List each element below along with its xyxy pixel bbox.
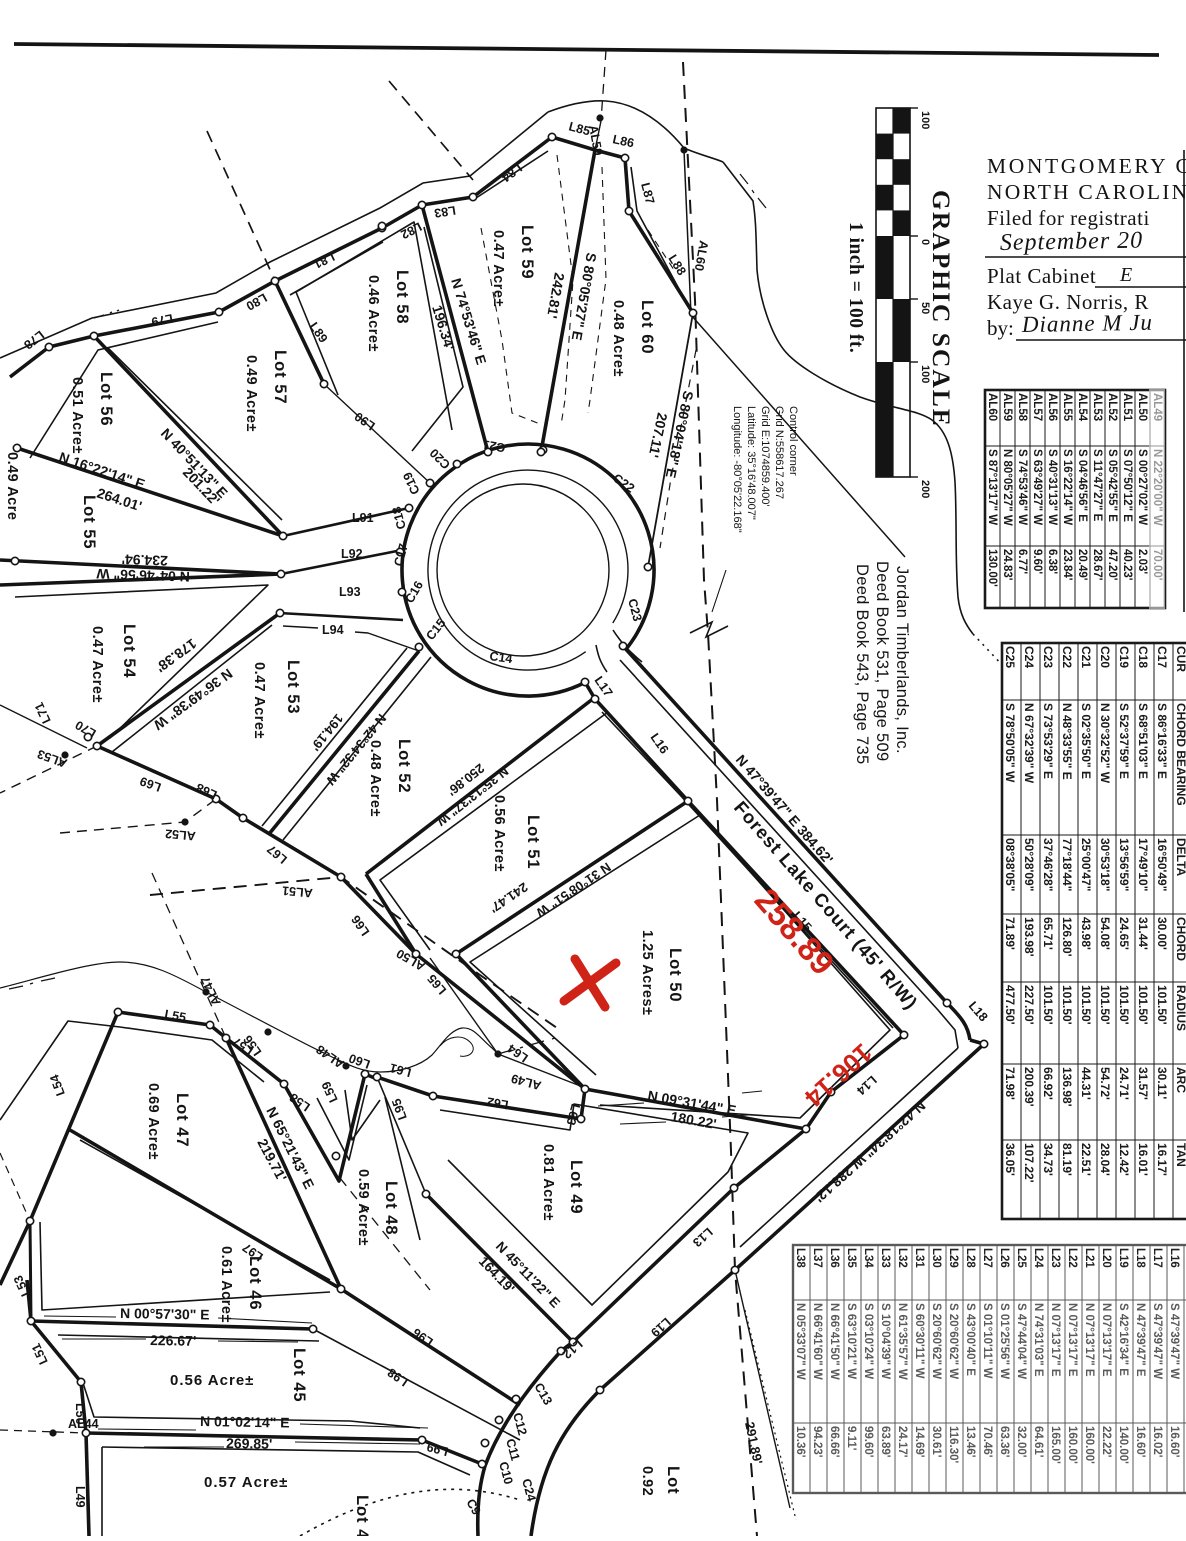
svg-text:N 01°02'14" E: N 01°02'14" E <box>200 1413 290 1431</box>
svg-text:16.60': 16.60' <box>1134 1426 1146 1458</box>
svg-text:12.42': 12.42' <box>1117 1143 1131 1176</box>
svg-text:S 20°60'62" W: S 20°60'62" W <box>930 1303 942 1379</box>
svg-text:GRAPHIC SCALE: GRAPHIC SCALE <box>927 190 956 428</box>
svg-text:ARC: ARC <box>1174 1067 1186 1093</box>
svg-text:N 47°39'47" E: N 47°39'47" E <box>1134 1303 1146 1377</box>
svg-text:99.60': 99.60' <box>862 1426 874 1458</box>
svg-text:200: 200 <box>919 480 931 498</box>
svg-text:24.17': 24.17' <box>896 1426 908 1458</box>
svg-text:6.38': 6.38' <box>1046 549 1058 574</box>
svg-text:Lot 50: Lot 50 <box>666 948 684 1003</box>
svg-text:Lot 53: Lot 53 <box>284 660 302 715</box>
svg-text:0.47 Acre±: 0.47 Acre± <box>89 626 105 703</box>
svg-text:269.85': 269.85' <box>226 1435 272 1452</box>
svg-text:16.02': 16.02' <box>1151 1426 1163 1458</box>
svg-text:N 07°13'17" E: N 07°13'17" E <box>1049 1303 1061 1377</box>
svg-text:0.92: 0.92 <box>639 1466 655 1496</box>
svg-text:226.67': 226.67' <box>150 1332 196 1349</box>
svg-text:AL57: AL57 <box>1031 393 1043 421</box>
svg-text:101.50': 101.50' <box>1117 985 1131 1025</box>
svg-text:C20: C20 <box>1098 646 1112 668</box>
svg-text:Longitude: -80°05'22.168": Longitude: -80°05'22.168" <box>731 406 743 533</box>
svg-text:Lot 56: Lot 56 <box>97 372 115 427</box>
svg-text:Lot 54: Lot 54 <box>120 624 138 679</box>
svg-text:AL52: AL52 <box>1106 393 1118 421</box>
svg-text:L18: L18 <box>1134 1248 1146 1268</box>
svg-text:66.66': 66.66' <box>828 1426 840 1458</box>
svg-text:S 01°10'11" W: S 01°10'11" W <box>981 1303 993 1379</box>
svg-text:N 00°57'30" E: N 00°57'30" E <box>120 1305 210 1323</box>
svg-text:Deed Book 543, Page 735: Deed Book 543, Page 735 <box>853 564 871 764</box>
svg-text:94.23': 94.23' <box>811 1426 823 1458</box>
svg-text:N 07°13'17" E: N 07°13'17" E <box>1066 1303 1078 1377</box>
svg-text:10.36': 10.36' <box>794 1426 806 1458</box>
svg-text:AL58: AL58 <box>1016 393 1028 422</box>
svg-text:Jordan Timberlands, Inc.: Jordan Timberlands, Inc. <box>893 566 911 754</box>
svg-text:9.60': 9.60' <box>1031 549 1043 574</box>
svg-text:13.46': 13.46' <box>964 1426 976 1458</box>
svg-text:L20: L20 <box>1100 1248 1112 1268</box>
svg-text:L35: L35 <box>845 1248 857 1268</box>
svg-text:0.48 Acre±: 0.48 Acre± <box>367 740 383 817</box>
svg-text:N 67°32'39" W: N 67°32'39" W <box>1022 703 1036 784</box>
svg-text:165.00': 165.00' <box>1049 1426 1061 1464</box>
svg-text:S 01°25'56" W: S 01°25'56" W <box>998 1303 1010 1379</box>
svg-text:Filed for registrati: Filed for registrati <box>987 206 1150 230</box>
svg-text:101.50': 101.50' <box>1060 985 1074 1025</box>
svg-text:S 68°51'03" E: S 68°51'03" E <box>1136 703 1150 779</box>
svg-text:L24: L24 <box>1032 1248 1044 1268</box>
svg-text:22.22': 22.22' <box>1100 1426 1112 1458</box>
svg-text:N 30°32'52" W: N 30°32'52" W <box>1098 703 1112 784</box>
svg-text:227.50': 227.50' <box>1022 985 1036 1025</box>
svg-text:101.50': 101.50' <box>1079 985 1093 1025</box>
svg-text:Lot 55: Lot 55 <box>80 495 98 550</box>
svg-text:30.11': 30.11' <box>1155 1067 1169 1099</box>
svg-text:0.49 Acre±: 0.49 Acre± <box>243 355 259 432</box>
svg-text:Latitude: 35°16'48.007": Latitude: 35°16'48.007" <box>745 406 757 520</box>
svg-text:S 63°49'27" W: S 63°49'27" W <box>1031 449 1043 525</box>
svg-text:0.56 Acre±: 0.56 Acre± <box>170 1372 254 1389</box>
svg-text:Lot 49: Lot 49 <box>567 1160 585 1215</box>
svg-text:L94: L94 <box>322 623 344 637</box>
svg-text:Lot 44: Lot 44 <box>353 1495 371 1536</box>
svg-text:28.67': 28.67' <box>1091 549 1103 581</box>
svg-text:S 52°37'59" E: S 52°37'59" E <box>1117 703 1131 779</box>
svg-text:S 43°00'40" E: S 43°00'40" E <box>964 1303 976 1376</box>
svg-text:N 80°05'27" W: N 80°05'27" W <box>1001 449 1013 526</box>
svg-text:193.98': 193.98' <box>1022 917 1036 957</box>
svg-text:24.83': 24.83' <box>1001 549 1013 581</box>
svg-text:37°46'28": 37°46'28" <box>1041 838 1055 891</box>
svg-text:CHORD BEARING: CHORD BEARING <box>1174 703 1186 806</box>
svg-text:L27: L27 <box>981 1248 993 1268</box>
svg-text:AL55: AL55 <box>1061 393 1073 422</box>
svg-text:17°49'10": 17°49'10" <box>1136 838 1150 891</box>
svg-text:2.03': 2.03' <box>1136 549 1148 574</box>
svg-text:30.61': 30.61' <box>930 1426 942 1458</box>
svg-text:Lot 57: Lot 57 <box>271 350 289 405</box>
svg-text:126.80': 126.80' <box>1060 917 1074 957</box>
svg-text:14.69': 14.69' <box>913 1426 925 1458</box>
svg-text:64.61': 64.61' <box>1032 1426 1044 1458</box>
svg-text:136.98': 136.98' <box>1060 1067 1074 1107</box>
svg-text:66.92': 66.92' <box>1041 1067 1055 1100</box>
svg-text:24.65': 24.65' <box>1117 917 1131 950</box>
svg-text:L38: L38 <box>794 1248 806 1268</box>
svg-text:0.51 Acre±: 0.51 Acre± <box>69 377 85 454</box>
svg-text:AL51: AL51 <box>1121 393 1133 422</box>
svg-text:101.50': 101.50' <box>1098 985 1112 1025</box>
svg-text:N 66°41'60" W: N 66°41'60" W <box>811 1303 823 1380</box>
svg-text:L19: L19 <box>1117 1248 1129 1268</box>
svg-text:TAN: TAN <box>1174 1143 1186 1167</box>
svg-text:16.17': 16.17' <box>1155 1143 1169 1176</box>
svg-text:L17: L17 <box>1151 1248 1163 1268</box>
svg-text:20.49': 20.49' <box>1076 549 1088 581</box>
svg-text:L23: L23 <box>1049 1248 1061 1268</box>
svg-text:L34: L34 <box>862 1248 874 1268</box>
svg-text:L31: L31 <box>913 1248 925 1268</box>
svg-text:L93: L93 <box>339 585 361 599</box>
svg-text:N 48°33'55" E: N 48°33'55" E <box>1060 703 1074 780</box>
svg-text:AL51: AL51 <box>282 883 314 900</box>
svg-text:234.94': 234.94' <box>121 551 168 569</box>
svg-text:16.01': 16.01' <box>1136 1143 1150 1176</box>
svg-text:81.19': 81.19' <box>1060 1143 1074 1176</box>
svg-text:116.30': 116.30' <box>947 1426 959 1464</box>
svg-text:C21: C21 <box>1079 646 1093 668</box>
svg-text:N 04°46'56" W: N 04°46'56" W <box>95 566 190 585</box>
svg-text:0.59 Acre±: 0.59 Acre± <box>355 1169 371 1246</box>
svg-text:9.11': 9.11' <box>845 1426 857 1451</box>
svg-text:C18: C18 <box>1136 646 1150 668</box>
svg-text:140.00': 140.00' <box>1117 1426 1129 1464</box>
svg-text:Lot 46: Lot 46 <box>246 1256 264 1311</box>
svg-text:L29: L29 <box>947 1248 959 1268</box>
svg-text:S 47°39'47" W: S 47°39'47" W <box>1168 1303 1180 1379</box>
svg-text:Lot 52: Lot 52 <box>395 739 413 794</box>
svg-text:C22: C22 <box>1060 646 1074 668</box>
svg-text:N 66°41'50" W: N 66°41'50" W <box>828 1303 840 1380</box>
svg-text:31.57': 31.57' <box>1136 1067 1150 1100</box>
svg-text:CUR: CUR <box>1174 646 1186 672</box>
svg-text:NORTH CAROLIN: NORTH CAROLIN <box>987 180 1186 204</box>
svg-text:L91: L91 <box>352 511 374 525</box>
svg-text:L16: L16 <box>1168 1248 1180 1268</box>
svg-text:0.69 Acre±: 0.69 Acre± <box>145 1083 161 1160</box>
svg-text:Lot 51: Lot 51 <box>524 815 542 870</box>
svg-text:S 07°50'12" E: S 07°50'12" E <box>1121 449 1133 522</box>
svg-text:Lot 48: Lot 48 <box>382 1181 400 1236</box>
svg-text:N 74°31'03" E: N 74°31'03" E <box>1032 1303 1044 1377</box>
svg-text:22.51': 22.51' <box>1079 1143 1093 1176</box>
svg-text:S 03°10'24" W: S 03°10'24" W <box>862 1303 874 1379</box>
svg-text:Plat Cabinet: Plat Cabinet <box>987 264 1096 288</box>
svg-text:0.81 Acre±: 0.81 Acre± <box>540 1144 556 1221</box>
svg-text:E: E <box>1119 264 1132 286</box>
svg-text:L22: L22 <box>1066 1248 1078 1268</box>
svg-text:63.36': 63.36' <box>998 1426 1010 1458</box>
svg-text:S 42°16'34" E: S 42°16'34" E <box>1117 1303 1129 1376</box>
svg-text:S 04°46'56" E: S 04°46'56" E <box>1076 449 1088 522</box>
svg-text:16.60': 16.60' <box>1168 1426 1180 1458</box>
svg-text:63.89': 63.89' <box>879 1426 891 1458</box>
svg-text:AL54: AL54 <box>1076 393 1088 422</box>
svg-text:Lot 60: Lot 60 <box>638 300 656 355</box>
svg-text:43.98': 43.98' <box>1079 917 1093 950</box>
svg-text:160.00': 160.00' <box>1066 1426 1078 1464</box>
svg-text:54.72': 54.72' <box>1098 1067 1112 1100</box>
svg-text:24.71': 24.71' <box>1117 1067 1131 1100</box>
svg-text:L25: L25 <box>1015 1248 1027 1268</box>
svg-text:70.46': 70.46' <box>981 1426 993 1458</box>
svg-text:0.47 Acre±: 0.47 Acre± <box>490 230 506 307</box>
svg-text:L92: L92 <box>341 547 363 561</box>
svg-text:S 47°44'04" W: S 47°44'04" W <box>1015 1303 1027 1379</box>
svg-text:S 60°30'11" W: S 60°30'11" W <box>913 1303 925 1379</box>
svg-text:32.00': 32.00' <box>1015 1426 1027 1458</box>
svg-text:28.04': 28.04' <box>1098 1143 1112 1176</box>
svg-text:Lot 45: Lot 45 <box>290 1348 308 1403</box>
svg-text:C19: C19 <box>1117 646 1131 668</box>
svg-text:S 47°39'47" W: S 47°39'47" W <box>1151 1303 1163 1379</box>
svg-text:S 10°04'39" W: S 10°04'39" W <box>879 1303 891 1379</box>
svg-text:AL44: AL44 <box>68 1417 99 1431</box>
svg-text:C17: C17 <box>1155 646 1169 668</box>
svg-text:S 05°42'55" E: S 05°42'55" E <box>1106 449 1118 522</box>
svg-text:L33: L33 <box>879 1248 891 1268</box>
svg-text:AL52: AL52 <box>165 826 197 843</box>
svg-text:0.57 Acre±: 0.57 Acre± <box>204 1474 288 1491</box>
svg-text:S 73°53'29" E: S 73°53'29" E <box>1041 703 1055 779</box>
svg-text:Dianne M Ju: Dianne M Ju <box>1021 310 1153 337</box>
svg-text:RADIUS: RADIUS <box>1174 985 1186 1031</box>
svg-text:107.22': 107.22' <box>1022 1143 1036 1183</box>
svg-text:50°28'09": 50°28'09" <box>1022 838 1036 891</box>
svg-text:36.05': 36.05' <box>1003 1143 1017 1176</box>
svg-text:L30: L30 <box>930 1248 942 1268</box>
svg-text:N 07°13'17" E: N 07°13'17" E <box>1083 1303 1095 1377</box>
svg-text:S 86°16'33" E: S 86°16'33" E <box>1155 703 1169 779</box>
svg-text:77°18'44": 77°18'44" <box>1060 838 1074 891</box>
svg-text:AL59: AL59 <box>1001 393 1013 421</box>
svg-text:160.00': 160.00' <box>1083 1426 1095 1464</box>
svg-text:101.50': 101.50' <box>1136 985 1150 1025</box>
svg-text:S 16°22'14" W: S 16°22'14" W <box>1061 449 1073 525</box>
svg-text:477.50': 477.50' <box>1003 985 1017 1025</box>
svg-text:N 61°35'57" W: N 61°35'57" W <box>896 1303 908 1380</box>
svg-text:13°56'59": 13°56'59" <box>1117 838 1131 891</box>
svg-text:Lot 59: Lot 59 <box>518 225 536 280</box>
svg-text:L36: L36 <box>828 1248 840 1268</box>
svg-text:0.47 Acre±: 0.47 Acre± <box>251 662 267 739</box>
svg-text:0.48 Acre±: 0.48 Acre± <box>610 300 626 377</box>
svg-text:MONTGOMERY C: MONTGOMERY C <box>987 154 1186 178</box>
svg-text:DELTA: DELTA <box>1174 838 1186 877</box>
svg-text:N 05°33'07" W: N 05°33'07" W <box>794 1303 806 1380</box>
svg-text:54.08': 54.08' <box>1098 917 1112 950</box>
svg-text:100: 100 <box>919 111 931 129</box>
svg-text:44.31': 44.31' <box>1079 1067 1093 1100</box>
svg-text:71.98': 71.98' <box>1003 1067 1017 1100</box>
svg-text:AL50: AL50 <box>1136 393 1148 421</box>
svg-text:1 inch = 100 ft.: 1 inch = 100 ft. <box>845 222 866 353</box>
svg-text:N 07°13'17" E: N 07°13'17" E <box>1100 1303 1112 1377</box>
svg-text:AL53: AL53 <box>1091 393 1103 421</box>
svg-text:AL56: AL56 <box>1046 393 1058 421</box>
svg-text:16°50'49": 16°50'49" <box>1155 838 1169 891</box>
svg-text:L49: L49 <box>73 1486 87 1508</box>
svg-text:0.61 Acre±: 0.61 Acre± <box>218 1246 234 1323</box>
svg-text:31.44': 31.44' <box>1136 917 1150 950</box>
svg-text:S 74°53'46" W: S 74°53'46" W <box>1016 449 1028 525</box>
svg-text:0.49 Acre: 0.49 Acre <box>4 452 20 520</box>
svg-text:Lot 58: Lot 58 <box>393 270 411 325</box>
svg-text:C24: C24 <box>1022 646 1036 668</box>
svg-text:C25: C25 <box>1003 646 1017 668</box>
svg-text:C23: C23 <box>1041 646 1055 668</box>
svg-text:6.77': 6.77' <box>1016 549 1028 574</box>
svg-text:Lot: Lot <box>664 1466 682 1495</box>
svg-text:L21: L21 <box>1083 1248 1095 1268</box>
svg-text:130.00': 130.00' <box>986 549 998 587</box>
svg-text:101.50': 101.50' <box>1041 985 1055 1025</box>
svg-text:S 20°60'62" W: S 20°60'62" W <box>947 1303 959 1379</box>
svg-text:S 40°31'13" W: S 40°31'13" W <box>1046 449 1058 525</box>
svg-text:S 02°35'50" E: S 02°35'50" E <box>1079 703 1093 779</box>
svg-text:71.89': 71.89' <box>1003 917 1017 950</box>
svg-text:101.50': 101.50' <box>1155 985 1169 1025</box>
svg-text:0.56 Acre±: 0.56 Acre± <box>491 795 507 872</box>
svg-text:Control corner: Control corner <box>787 406 799 476</box>
svg-text:S 63°10'21" W: S 63°10'21" W <box>845 1303 857 1379</box>
svg-text:08°38'05": 08°38'05" <box>1003 838 1017 891</box>
svg-text:L32: L32 <box>896 1248 908 1268</box>
svg-text:by:: by: <box>987 316 1014 340</box>
svg-text:25°00'47": 25°00'47" <box>1079 838 1093 891</box>
svg-text:L37: L37 <box>811 1248 823 1268</box>
svg-text:0.46 Acre±: 0.46 Acre± <box>365 275 381 352</box>
svg-text:200.39': 200.39' <box>1022 1067 1036 1107</box>
svg-text:47.20': 47.20' <box>1106 549 1118 581</box>
svg-text:Lot 47: Lot 47 <box>173 1093 191 1148</box>
svg-text:34.73': 34.73' <box>1041 1143 1055 1176</box>
svg-text:40.23': 40.23' <box>1121 549 1133 581</box>
svg-text:65.71': 65.71' <box>1041 917 1055 950</box>
svg-text:1.25 Acres±: 1.25 Acres± <box>639 930 655 1015</box>
svg-text:September 20: September 20 <box>1000 228 1144 256</box>
svg-text:30.00': 30.00' <box>1155 917 1169 950</box>
svg-text:S 00°27'02" W: S 00°27'02" W <box>1136 449 1148 525</box>
svg-text:S 87°13'17" W: S 87°13'17" W <box>986 449 998 525</box>
svg-text:S 11°47'27" E: S 11°47'27" E <box>1091 449 1103 522</box>
svg-text:CHORD: CHORD <box>1174 917 1186 961</box>
svg-text:30°53'18": 30°53'18" <box>1098 838 1112 891</box>
svg-text:L26: L26 <box>998 1248 1010 1268</box>
svg-text:AL60: AL60 <box>986 393 998 421</box>
svg-text:Grid E:1074859.400': Grid E:1074859.400' <box>759 406 771 507</box>
svg-text:Deed Book 531, Page 509: Deed Book 531, Page 509 <box>873 561 891 761</box>
svg-text:23.84': 23.84' <box>1061 549 1073 581</box>
svg-text:L28: L28 <box>964 1248 976 1268</box>
svg-text:S 78°50'05" W: S 78°50'05" W <box>1003 703 1017 783</box>
